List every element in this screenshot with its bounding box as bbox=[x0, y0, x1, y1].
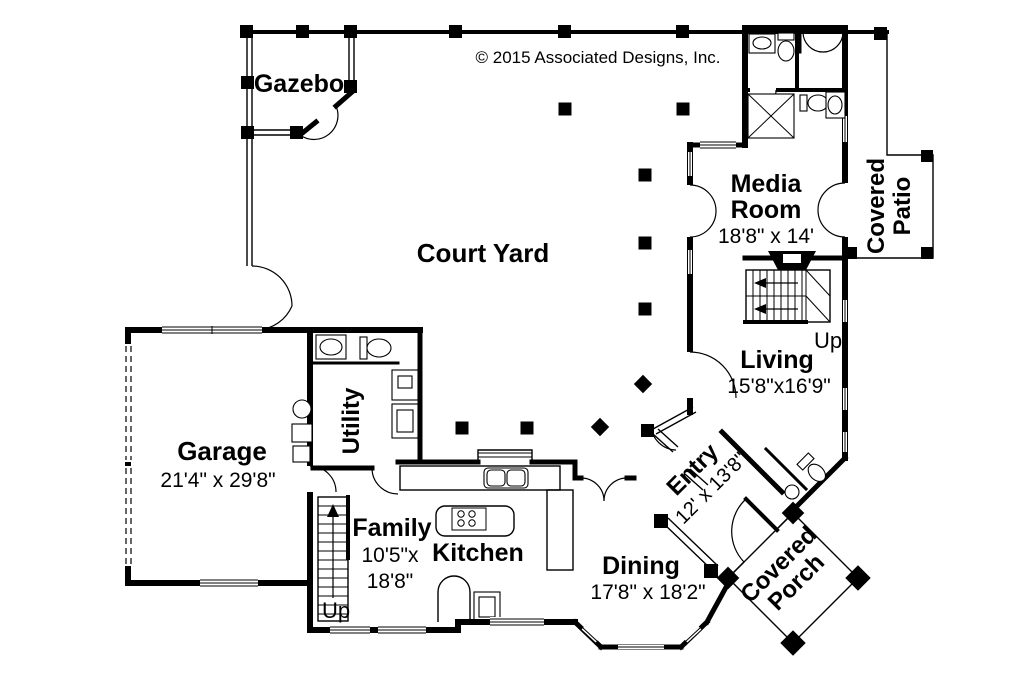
room-dims-garage: 21'4" x 29'8" bbox=[160, 469, 275, 492]
stairs-upper-up-label: Up bbox=[814, 328, 842, 353]
room-dims-dining: 17'8" x 18'2" bbox=[590, 581, 705, 604]
floor-plan-canvas: © 2015 Associated Designs, Inc. Gazebo C… bbox=[0, 0, 1024, 682]
room-dims-family-line2: 18'8" bbox=[367, 570, 414, 593]
room-label-covered-porch: Covered Porch bbox=[735, 521, 840, 626]
room-label-court-yard: Court Yard bbox=[417, 238, 549, 268]
room-label-living: Living bbox=[740, 346, 814, 374]
room-label-utility: Utility bbox=[338, 387, 365, 454]
floor-plan: © 2015 Associated Designs, Inc. Gazebo C… bbox=[0, 0, 1024, 682]
room-dims-media: 18'8" x 14' bbox=[718, 225, 814, 248]
copyright-text: © 2015 Associated Designs, Inc. bbox=[476, 48, 721, 67]
powder-room bbox=[766, 449, 830, 499]
room-dims-living: 15'8"x16'9" bbox=[727, 375, 831, 398]
courtyard-left-wall bbox=[247, 134, 292, 330]
room-label-dining: Dining bbox=[602, 552, 680, 580]
room-label-covered-patio-line2: Patio bbox=[889, 177, 916, 236]
room-label-covered-patio-line1: Covered bbox=[863, 158, 890, 254]
room-label-gazebo: Gazebo bbox=[254, 70, 344, 98]
courtyard-posts bbox=[456, 103, 690, 437]
room-label-media-line2: Room bbox=[731, 196, 802, 224]
room-dims-family-line1: 10'5"x bbox=[361, 544, 419, 567]
room-label-family: Family bbox=[352, 514, 431, 542]
room-label-kitchen: Kitchen bbox=[432, 539, 524, 567]
room-label-media-line1: Media bbox=[731, 170, 803, 198]
room-label-covered-patio: Covered Patio bbox=[863, 158, 916, 254]
room-label-utility-text: Utility bbox=[338, 387, 365, 454]
stairs-lower-up-label: Up bbox=[322, 598, 350, 623]
room-label-garage: Garage bbox=[177, 436, 267, 466]
